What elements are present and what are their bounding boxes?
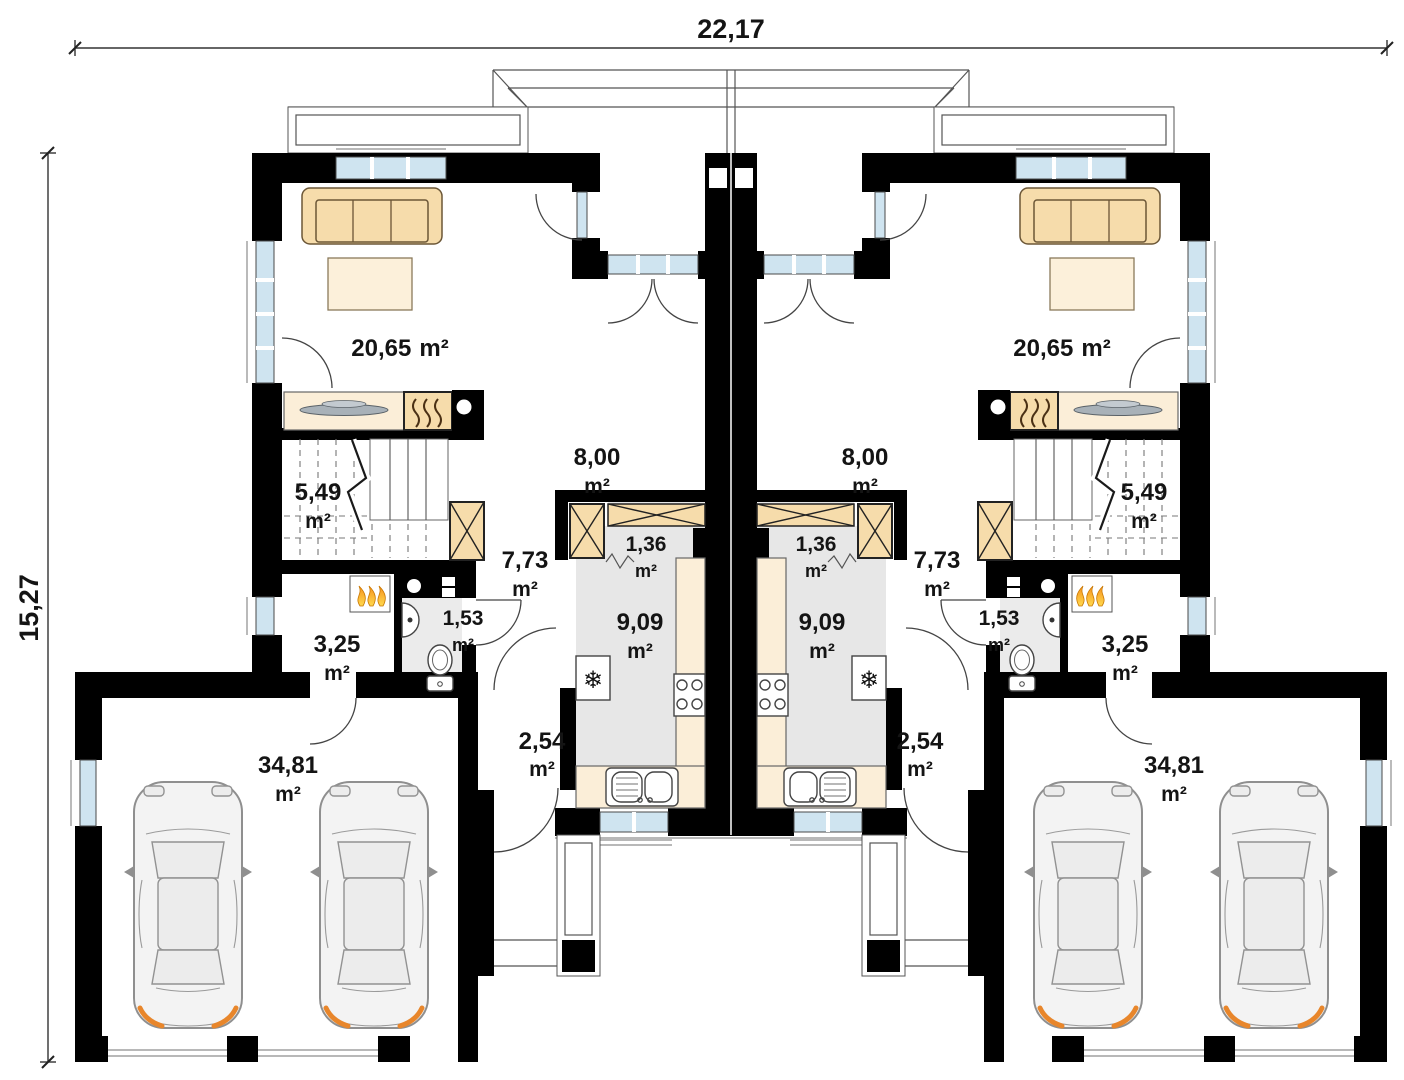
kitchen-window (596, 812, 672, 845)
overall-width-label: 22,17 (697, 14, 765, 44)
storage-xbox (450, 502, 484, 560)
svg-text:m²: m² (324, 662, 350, 685)
wardrobe-xbox (608, 504, 705, 526)
fireplace (404, 392, 452, 430)
room-label-hall-left: 7,73 (502, 547, 549, 574)
terrace-door-arc-living (282, 338, 332, 388)
room-label-vestibule-right: 2,54 (897, 728, 944, 755)
garage-cars (124, 782, 438, 1028)
svg-text:m²: m² (529, 758, 555, 781)
fridge: ❄ (576, 656, 610, 700)
room-label-wc-left: 1,53 (443, 607, 484, 630)
room-label-living-left: 20,65m² (351, 335, 448, 362)
room-label-pantry-right: 1,36 (796, 533, 837, 556)
svg-text:m²: m² (852, 475, 878, 498)
room-label-pantry-left: 1,36 (626, 533, 667, 556)
room-label-boiler-right: 3,25 (1102, 631, 1149, 658)
room-label-stairs-left: 5,49 (295, 479, 342, 506)
svg-text:m²: m² (275, 783, 301, 806)
terrace-structure (494, 835, 731, 976)
svg-text:m²: m² (1161, 783, 1187, 806)
stove (674, 674, 705, 716)
svg-text:m²: m² (907, 758, 933, 781)
entrance-door (536, 192, 587, 240)
sideboard (284, 392, 404, 430)
svg-text:m²: m² (452, 635, 474, 655)
dimension-left: 15,27 (14, 147, 56, 1068)
room-label-garage-left: 34,81 (258, 752, 318, 779)
balcony-right (934, 107, 1174, 153)
room-label-dining-right: 8,00 (842, 444, 889, 471)
svg-text:m²: m² (1131, 510, 1157, 533)
toilet (427, 645, 453, 691)
floor-plan-drawing: ❄ (0, 0, 1404, 1080)
room-label-vestibule-left: 2,54 (519, 728, 566, 755)
coffee-table (328, 258, 412, 310)
chimney-block (452, 390, 484, 432)
svg-text:m²: m² (305, 510, 331, 533)
room-label-kitchen-left: 9,09 (617, 609, 664, 636)
french-doors-dining (608, 279, 698, 323)
vestibule-door-arc (494, 628, 556, 690)
room-label-living-right: 20,65m² (1013, 335, 1110, 362)
canopy-outline (288, 70, 1174, 153)
boiler-window (247, 597, 274, 635)
pantry-xbox (570, 504, 604, 558)
room-label-stairs-right: 5,49 (1121, 479, 1168, 506)
room-label-boiler-left: 3,25 (314, 631, 361, 658)
boiler-flame-box (350, 576, 390, 612)
snowflake-icon: ❄ (583, 667, 603, 694)
sofa (302, 188, 442, 244)
boiler-garage-door-arc (310, 698, 356, 744)
svg-text:m²: m² (635, 561, 657, 581)
unit-right-mirrored (731, 149, 1391, 1062)
room-label-garage-right: 34,81 (1144, 752, 1204, 779)
svg-text:m²: m² (924, 578, 950, 601)
balcony-left (288, 107, 528, 153)
svg-text:m²: m² (988, 635, 1010, 655)
dimension-top: 22,17 (69, 14, 1393, 56)
living-side-window (247, 241, 274, 383)
room-label-hall-right: 7,73 (914, 547, 961, 574)
room-label-kitchen-right: 9,09 (799, 609, 846, 636)
svg-text:m²: m² (1112, 662, 1138, 685)
dining-french-door-glazing (608, 255, 698, 274)
garage-window (71, 760, 96, 826)
vestibule-terrace-door-arc (494, 788, 558, 852)
svg-text:m²: m² (512, 578, 538, 601)
room-label-dining-left: 8,00 (574, 444, 621, 471)
kitchen-sink (606, 768, 678, 806)
svg-text:m²: m² (805, 561, 827, 581)
svg-text:m²: m² (584, 475, 610, 498)
svg-text:m²: m² (627, 640, 653, 663)
svg-text:m²: m² (809, 640, 835, 663)
unit-plan: ❄ (71, 149, 731, 1062)
overall-height-label: 15,27 (14, 574, 44, 642)
floorplan-page: ❄ (0, 0, 1404, 1080)
room-label-wc-right: 1,53 (979, 607, 1020, 630)
